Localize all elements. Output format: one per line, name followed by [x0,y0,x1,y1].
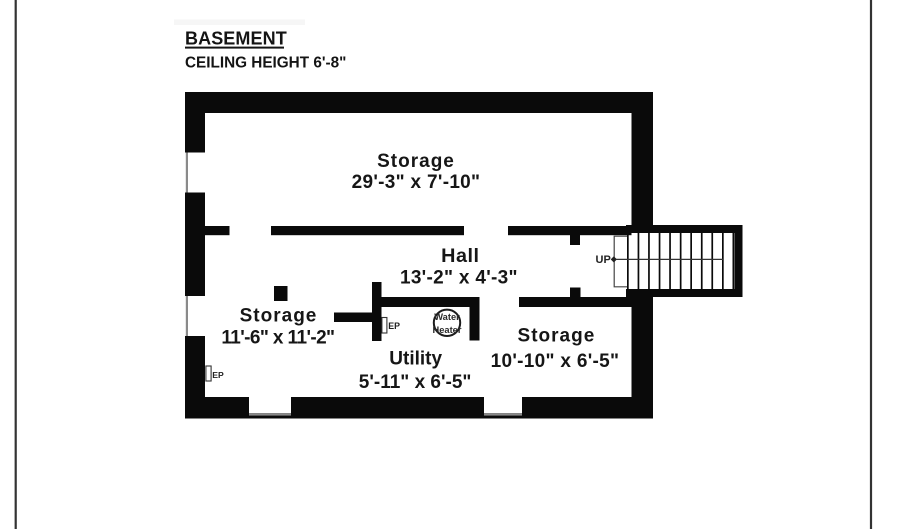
svg-text:Hall: Hall [441,245,479,267]
svg-text:13'-2" x 4'-3": 13'-2" x 4'-3" [400,267,518,288]
svg-text:Storage: Storage [518,326,596,347]
svg-text:Storage: Storage [377,151,455,172]
svg-text:Utility: Utility [389,349,442,370]
svg-text:Water: Water [434,312,460,322]
svg-text:EP: EP [212,370,224,380]
svg-text:Heater: Heater [433,325,462,335]
svg-text:EP: EP [388,321,400,331]
svg-text:11'-6" x 11'-2": 11'-6" x 11'-2" [221,327,334,348]
svg-text:5'-11" x 6'-5": 5'-11" x 6'-5" [359,372,472,393]
svg-text:UP: UP [596,254,611,266]
svg-text:10'-10" x 6'-5": 10'-10" x 6'-5" [491,351,620,372]
svg-text:BASEMENT: BASEMENT [185,29,287,49]
svg-text:Storage: Storage [240,306,318,327]
svg-text:CEILING HEIGHT 6'-8": CEILING HEIGHT 6'-8" [185,55,346,72]
svg-text:29'-3" x 7'-10": 29'-3" x 7'-10" [352,172,481,193]
